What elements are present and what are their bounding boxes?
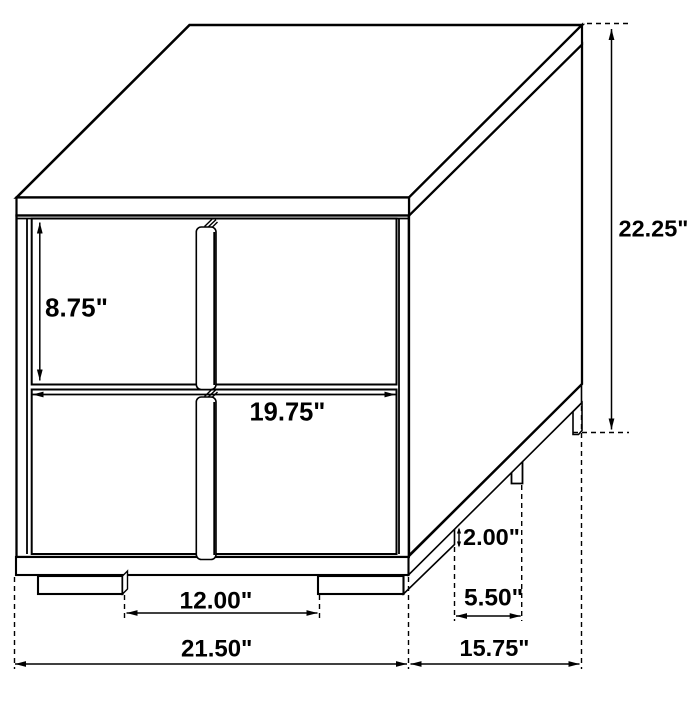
svg-text:2.00": 2.00"	[463, 524, 520, 550]
svg-text:22.25": 22.25"	[619, 216, 689, 242]
svg-text:12.00": 12.00"	[180, 588, 253, 615]
svg-text:5.50": 5.50"	[464, 585, 523, 612]
svg-text:8.75": 8.75"	[45, 293, 108, 323]
svg-text:15.75": 15.75"	[460, 635, 530, 661]
svg-text:19.75": 19.75"	[250, 399, 326, 427]
svg-text:21.50": 21.50"	[181, 636, 252, 663]
